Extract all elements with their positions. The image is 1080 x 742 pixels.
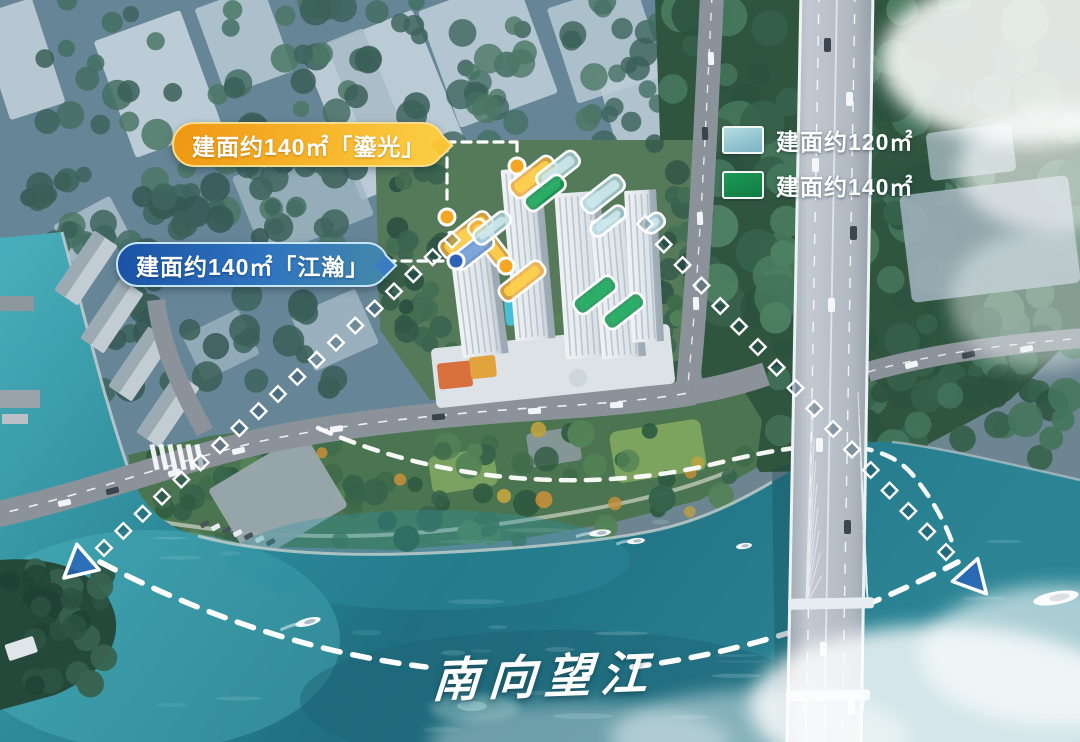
legend-row-120: 建面约120㎡ bbox=[722, 123, 913, 157]
legend-label-120: 建面约120㎡ bbox=[776, 123, 913, 157]
legend-swatch-green bbox=[722, 171, 764, 199]
label-jianghan-text: 建面约140㎡「江瀚」 bbox=[136, 248, 369, 282]
dock bbox=[0, 390, 40, 408]
marker-dot-orange bbox=[439, 209, 455, 225]
bridge-pylon bbox=[788, 597, 874, 609]
view-caption: 南向望江 bbox=[398, 633, 693, 712]
marker-dot-blue bbox=[448, 253, 464, 269]
marker-dot-orange bbox=[509, 158, 525, 174]
legend-row-140: 建面约140㎡ bbox=[722, 168, 913, 202]
dock bbox=[0, 296, 34, 311]
label-liuguang-text: 建面约140㎡「鎏光」 bbox=[192, 128, 425, 162]
label-liuguang: 建面约140㎡「鎏光」 bbox=[172, 122, 445, 167]
marker-dot-orange bbox=[498, 258, 514, 274]
headland bbox=[0, 558, 117, 710]
legend: 建面约120㎡ 建面约140㎡ bbox=[722, 123, 913, 202]
aerial-site-render: 建面约140㎡「鎏光」 建面约140㎡「江瀚」 建面约120㎡ 建面约140㎡ … bbox=[0, 0, 1080, 742]
legend-label-140: 建面约140㎡ bbox=[776, 168, 913, 202]
label-jianghan: 建面约140㎡「江瀚」 bbox=[116, 242, 389, 287]
legend-swatch-teal bbox=[722, 126, 764, 154]
